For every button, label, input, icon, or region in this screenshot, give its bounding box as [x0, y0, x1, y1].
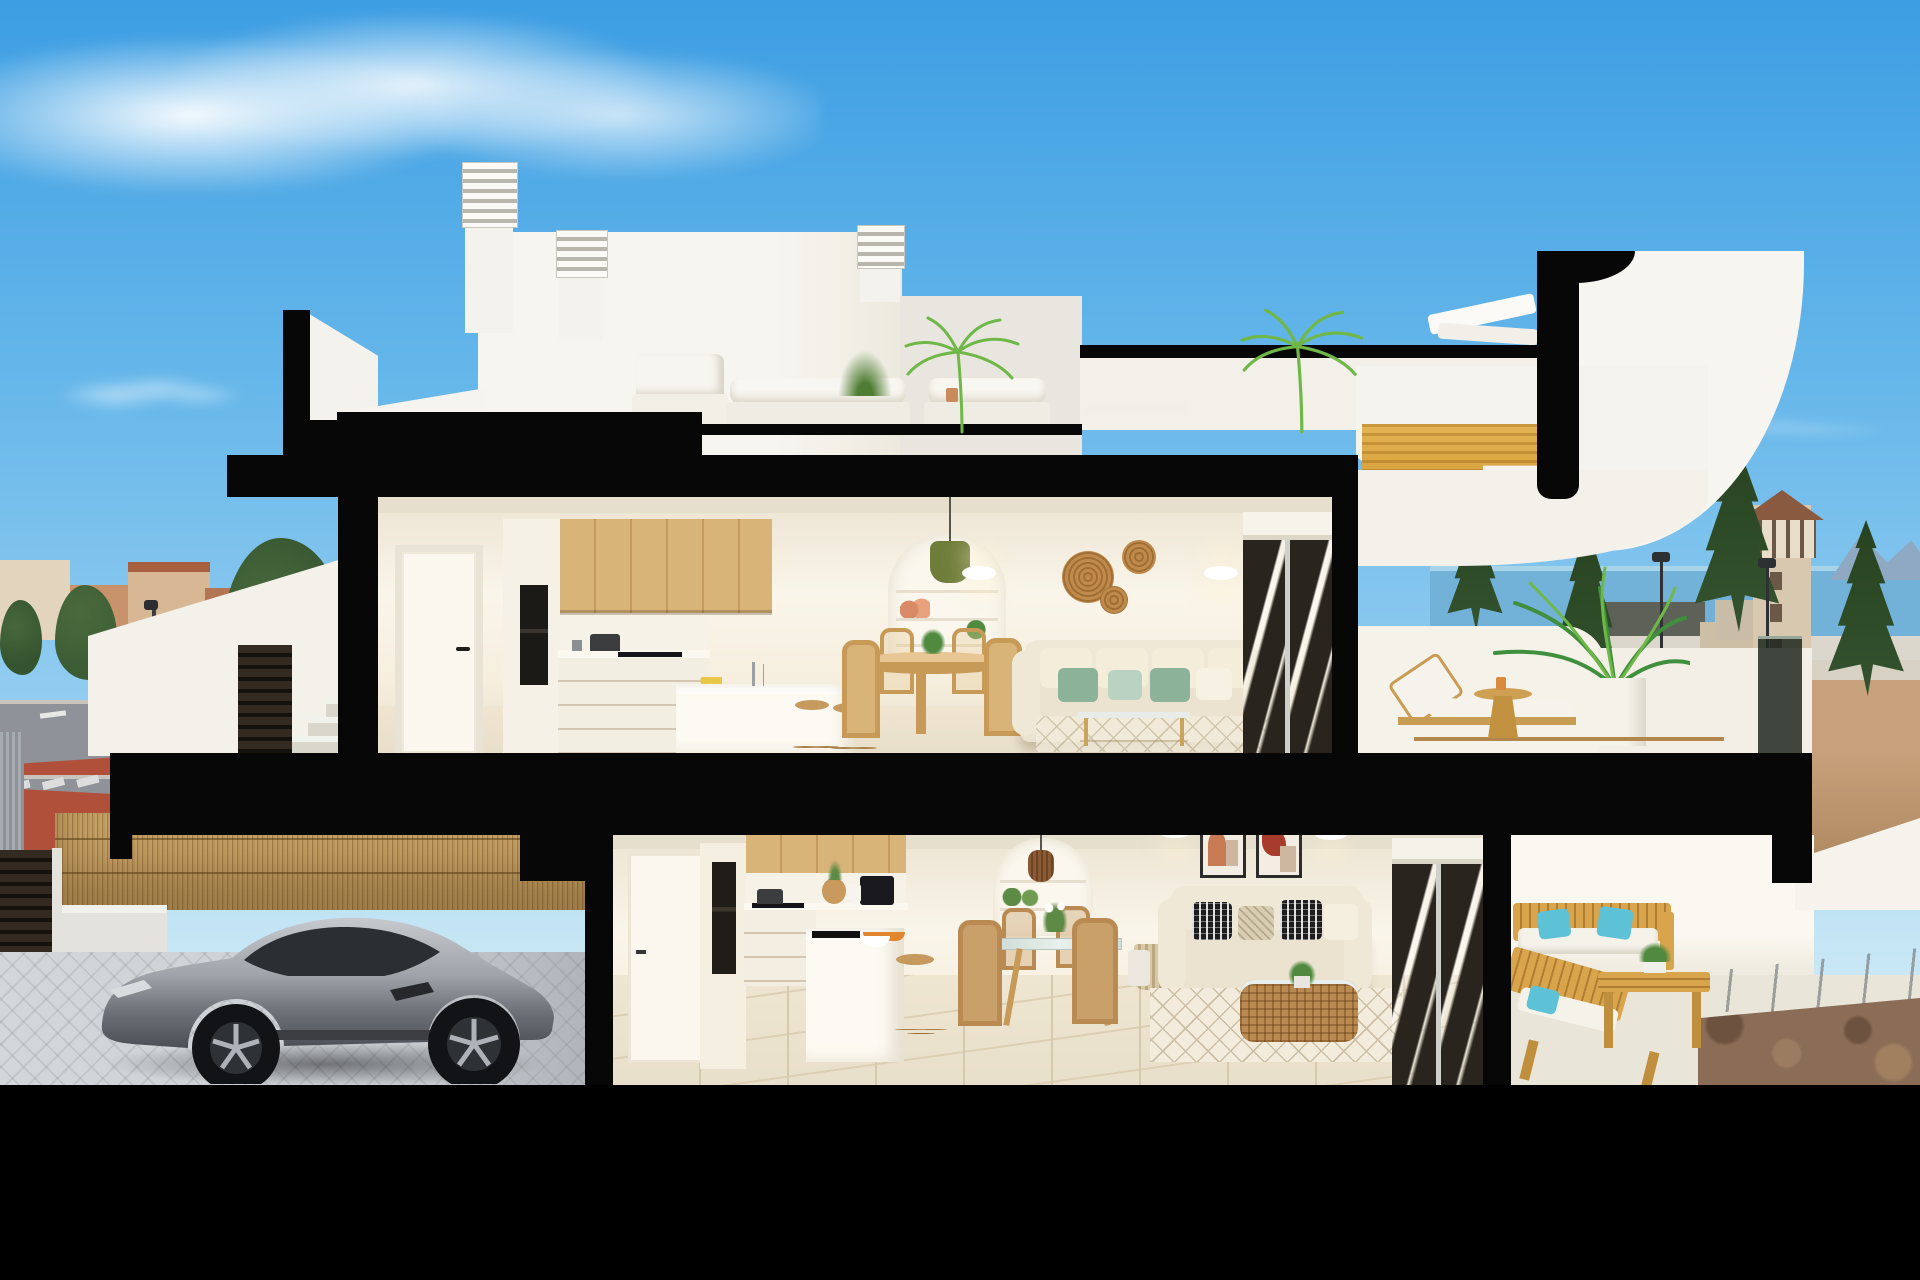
section-roof-band: [227, 455, 1349, 497]
white-jug: [848, 884, 861, 904]
areca-palm: [1470, 548, 1690, 698]
pillow-teal: [1536, 908, 1571, 940]
pillow-bw-pattern: [1280, 900, 1322, 940]
blind-box: [1243, 512, 1333, 540]
section-column-lower-right: [1483, 835, 1511, 1087]
pillow-teal: [1596, 906, 1634, 940]
section-column-upper-right: [1332, 455, 1358, 755]
coffee-table-glass: [1078, 712, 1190, 718]
slab-tab-right: [1772, 835, 1812, 883]
sliding-glass-door-lower: [1392, 864, 1436, 1090]
pendant-cord: [949, 497, 951, 543]
backsplash: [560, 615, 708, 651]
bench-plant: [1636, 940, 1674, 962]
rattan-pendant: [1028, 850, 1054, 882]
art-shape: [1226, 840, 1238, 866]
wall-sconce: [962, 566, 996, 580]
rooftop-palm: [900, 314, 1030, 434]
peninsula: [806, 928, 904, 1062]
vase-sprigs: [826, 856, 844, 880]
table-cup: [1496, 677, 1506, 690]
section-roof-band-thick: [337, 412, 702, 458]
coffee-bench-top: [1598, 972, 1710, 992]
rooftop-palm: [1230, 306, 1380, 434]
sail-black-cap: [1537, 251, 1579, 499]
coffee-machine: [860, 876, 894, 905]
lemons: [700, 677, 722, 684]
dining-chair-lower-front: [1072, 918, 1118, 1024]
coffee-bench-legs: [1604, 992, 1613, 1048]
base-ground-band: [0, 1085, 1920, 1280]
sliding-glass-door: [1290, 540, 1333, 753]
table-centerpiece-plant: [918, 626, 948, 654]
rattan-coffee-table: [1240, 980, 1358, 1042]
pendant-cord: [1040, 835, 1042, 851]
niche-shelf: [896, 590, 998, 593]
island: [676, 684, 854, 753]
corrugated-fence: [0, 732, 24, 858]
lounger-frame: [1398, 717, 1576, 725]
lamppost-head: [1758, 558, 1776, 568]
pillow-sage: [1150, 668, 1190, 702]
entry-louver-panel: [238, 645, 292, 753]
terrace-glass-railing: [1758, 636, 1802, 753]
art-shape: [1208, 832, 1226, 866]
sports-car: [92, 872, 562, 1084]
roof-grass-plant: [838, 350, 892, 396]
peninsula-sink: [812, 931, 860, 938]
cutaway-render: [0, 0, 1920, 1280]
lamppost-head: [144, 600, 158, 610]
chimney-tall-louver: [462, 162, 518, 228]
upper-ceiling-shade: [378, 497, 1332, 513]
niche-vases: [900, 598, 930, 618]
roof-low-table: [1086, 404, 1188, 414]
wall-basket: [1100, 586, 1128, 614]
oven-lower: [712, 862, 736, 974]
stool-lower: [896, 954, 934, 965]
pillow-bw-pattern: [1192, 902, 1232, 940]
coffee-table-legs: [1084, 718, 1088, 746]
wall-sconce: [1204, 566, 1238, 580]
island-faucet: [752, 662, 755, 686]
sliding-glass-door: [1243, 540, 1285, 753]
tree: [0, 600, 42, 675]
door-handle: [456, 647, 470, 651]
pillow-cream: [1324, 904, 1358, 940]
stool: [795, 700, 829, 710]
interfloor-slab: [110, 753, 1812, 835]
roof-sofa-left-back: [636, 354, 724, 396]
section-column-lower-left: [585, 835, 613, 1087]
pillow-mint: [1108, 670, 1142, 700]
palm-planter: [1584, 678, 1646, 746]
wall-basket: [1122, 540, 1156, 574]
slab-tab-left: [110, 835, 132, 859]
door-divider: [1285, 540, 1290, 753]
sofa-lower-arm: [1158, 898, 1186, 992]
cooking-pot: [590, 634, 620, 651]
dining-chair: [842, 640, 880, 738]
table-pedestal: [916, 672, 926, 734]
blanket: [1128, 950, 1150, 986]
pillow-woven: [1238, 906, 1274, 940]
door-divider: [1436, 864, 1441, 1090]
lower-pot: [757, 889, 783, 904]
section-column-top-narrow: [283, 310, 310, 460]
hall-door-handle: [636, 950, 646, 954]
upper-cabinets-oak: [560, 519, 772, 613]
dining-chair-lower-front: [958, 920, 1002, 1026]
watchtower-window: [1770, 604, 1782, 622]
door: [402, 552, 476, 753]
chimney-short-louver: [556, 230, 608, 278]
niche-plants: [1002, 888, 1042, 906]
cooktop: [618, 652, 682, 657]
rattan-vase: [822, 878, 846, 904]
sliding-glass-door-lower: [1440, 864, 1486, 1090]
pillow-sage: [1058, 668, 1098, 702]
flower-centerpiece: [1040, 898, 1070, 932]
table-plant-pot: [1294, 976, 1310, 988]
section-column-upper-left: [338, 495, 378, 757]
double-oven: [520, 585, 548, 685]
blind-box-lower: [1392, 838, 1486, 864]
art-shape: [1280, 846, 1296, 872]
cloud-small: [60, 372, 240, 414]
cloud-large: [0, 0, 820, 210]
kitchen-jar: [572, 640, 582, 651]
pillow-cream: [1196, 668, 1232, 700]
chimney-small-louver: [857, 225, 905, 269]
